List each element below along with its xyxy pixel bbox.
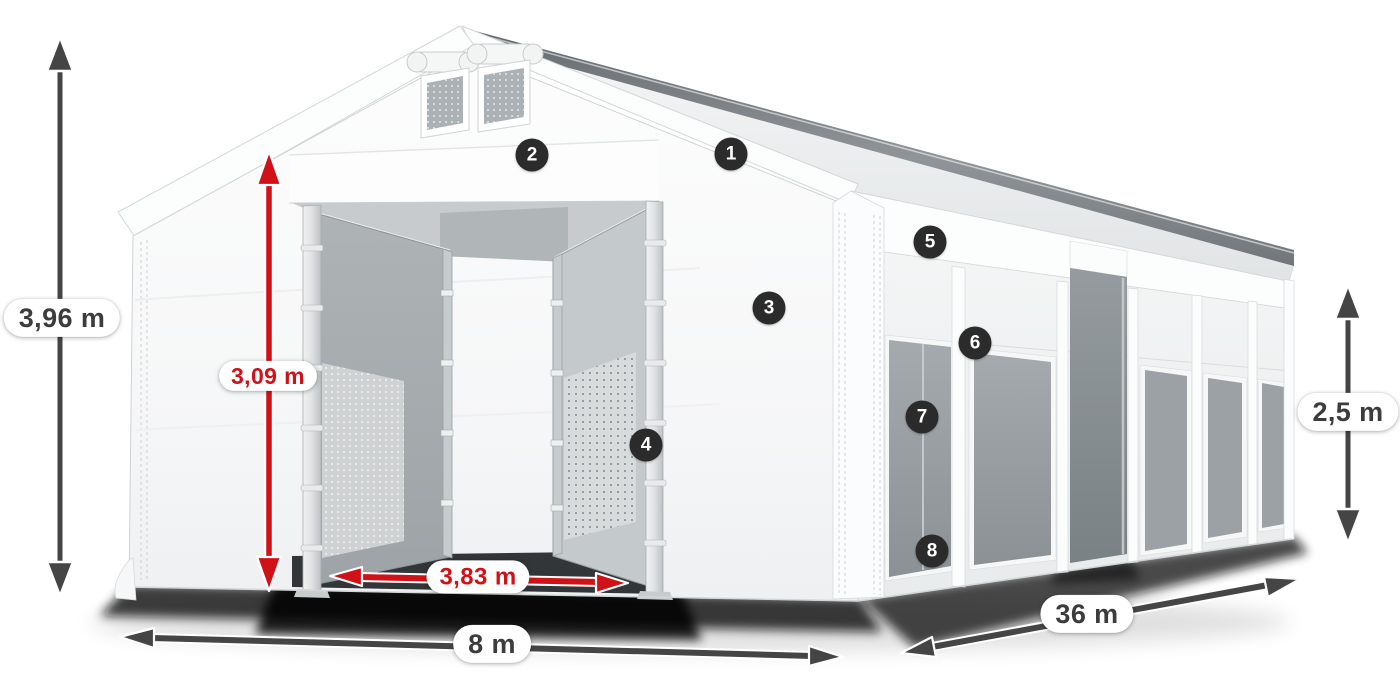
side-window-3 <box>1262 383 1284 528</box>
side-open-section-2 <box>974 353 1051 565</box>
door-leaf-left <box>308 211 453 586</box>
tent-illustration <box>0 0 1400 700</box>
dimension-label-total-height: 3,96 m <box>4 299 120 337</box>
dimension-label-entrance-height: 3,09 m <box>219 361 317 391</box>
dimension-label-length: 36 m <box>1040 595 1133 633</box>
part-badge-5: 5 <box>914 226 947 259</box>
dimension-label-side-height: 2,5 m <box>1297 393 1398 431</box>
front-corner-band <box>833 191 884 599</box>
dimension-label-width: 8 m <box>453 625 531 663</box>
dimension-label-entrance-width: 3,83 m <box>426 560 529 593</box>
part-badge-1: 1 <box>715 138 748 171</box>
part-badge-3: 3 <box>753 292 786 325</box>
door-leaf-right <box>551 209 648 586</box>
part-badge-7: 7 <box>906 401 939 434</box>
side-window-1 <box>1145 370 1187 551</box>
side-window-2 <box>1208 378 1242 538</box>
part-badge-8: 8 <box>916 535 949 568</box>
side-door-opening <box>1070 268 1127 563</box>
part-badge-4: 4 <box>630 429 663 462</box>
part-badge-2: 2 <box>516 139 549 172</box>
part-badge-6: 6 <box>959 327 992 360</box>
tent-dimension-diagram: 3,96 m 3,09 m 3,83 m 8 m 36 m 2,5 m 1 2 … <box>0 0 1400 700</box>
